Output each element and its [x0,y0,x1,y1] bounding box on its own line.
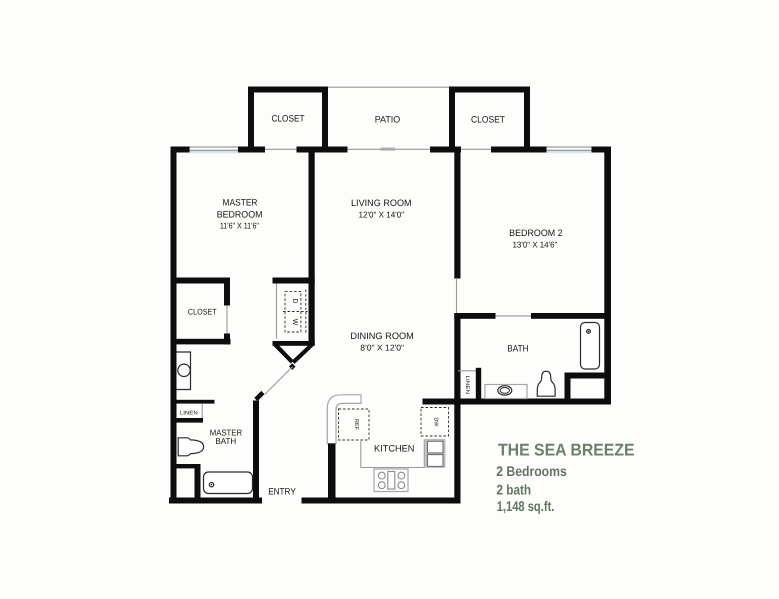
svg-text:1,148 sq.ft.: 1,148 sq.ft. [497,498,555,514]
svg-text:BATH: BATH [507,343,528,353]
svg-text:2 bath: 2 bath [497,482,532,498]
svg-text:12'0" X 14'0": 12'0" X 14'0" [359,210,405,220]
svg-text:2 Bedrooms: 2 Bedrooms [496,463,567,479]
svg-text:13'0" X 14'6": 13'0" X 14'6" [513,240,558,250]
svg-text:PATIO: PATIO [375,115,401,125]
svg-text:CLOSET: CLOSET [272,114,305,124]
svg-text:BATH: BATH [215,436,236,446]
svg-text:D: D [291,298,298,303]
svg-text:8'0" X 12'0": 8'0" X 12'0" [360,342,404,352]
svg-text:CLOSET: CLOSET [188,308,217,317]
svg-text:THE SEA BREEZE: THE SEA BREEZE [498,441,635,460]
svg-text:LIVING ROOM: LIVING ROOM [351,198,412,208]
svg-text:BEDROOM 2: BEDROOM 2 [509,228,563,238]
svg-text:REF: REF [353,419,359,431]
svg-text:ENTRY: ENTRY [268,486,296,496]
svg-text:CLOSET: CLOSET [471,115,505,125]
svg-text:11'6" X 11'6": 11'6" X 11'6" [220,221,259,231]
svg-text:DINING ROOM: DINING ROOM [350,331,414,341]
svg-text:LINEN: LINEN [464,376,470,395]
svg-text:KITCHEN: KITCHEN [374,444,414,454]
svg-text:LINEN: LINEN [180,410,198,416]
svg-text:W: W [291,319,298,326]
svg-text:DW: DW [433,417,439,427]
svg-text:BEDROOM: BEDROOM [217,209,263,219]
svg-text:MASTER: MASTER [223,198,258,208]
